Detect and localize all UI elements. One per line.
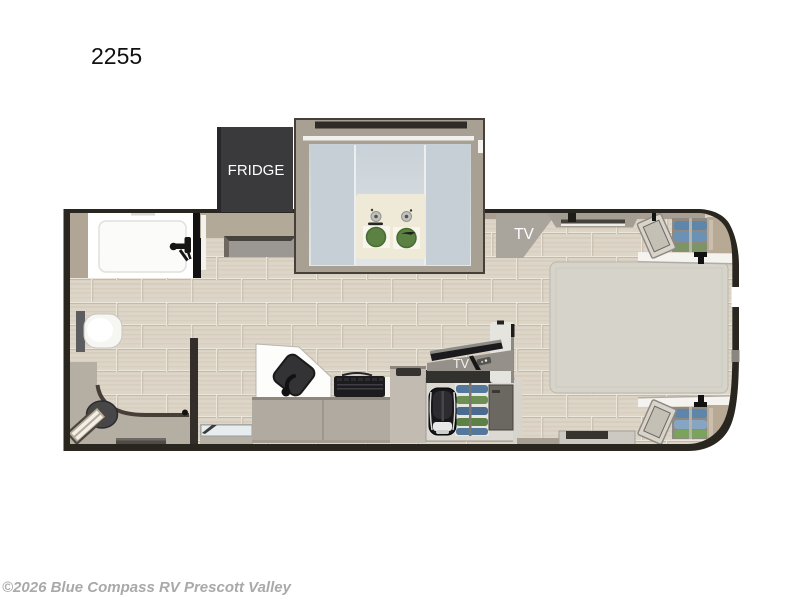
svg-text:FRIDGE: FRIDGE	[228, 162, 285, 179]
svg-text:TV: TV	[514, 226, 534, 243]
svg-text:TV: TV	[453, 357, 470, 371]
